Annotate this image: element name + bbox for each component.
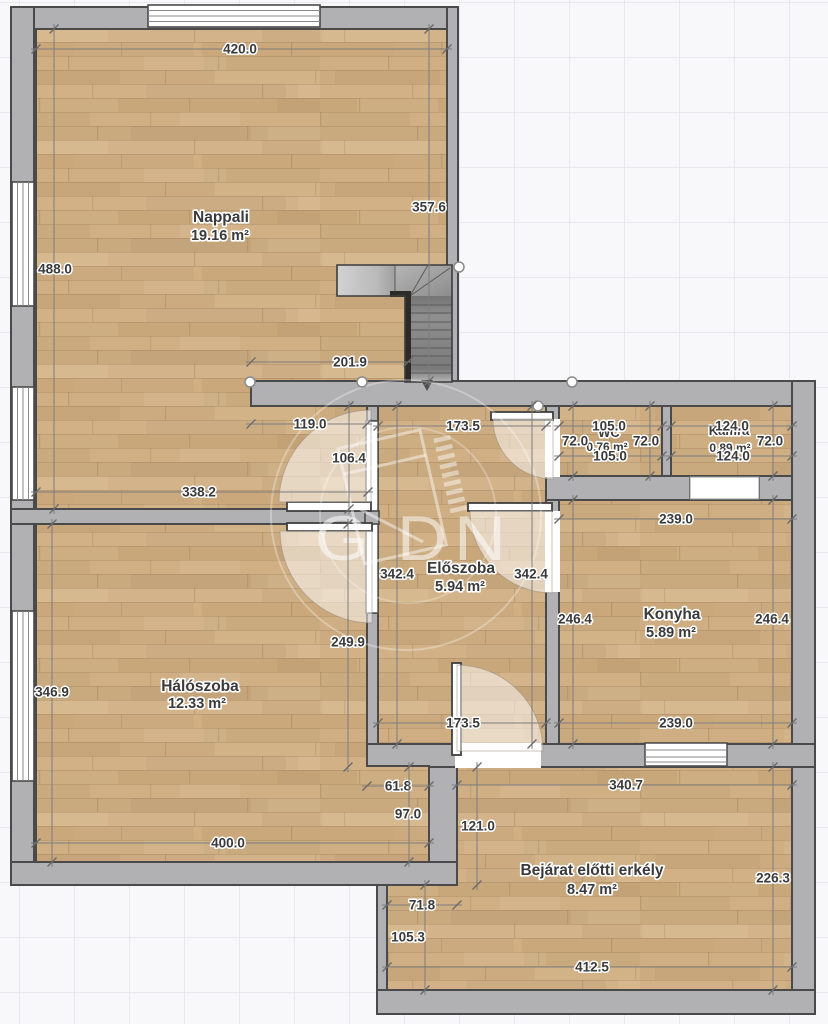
- svg-text:G: G: [315, 504, 369, 574]
- svg-text:226.3: 226.3: [756, 871, 790, 886]
- svg-text:72.0: 72.0: [562, 434, 588, 449]
- svg-text:246.4: 246.4: [755, 612, 789, 627]
- svg-text:121.0: 121.0: [461, 819, 495, 834]
- svg-text:173.5: 173.5: [446, 419, 480, 434]
- svg-text:246.4: 246.4: [558, 612, 592, 627]
- svg-text:61.8: 61.8: [385, 779, 412, 794]
- svg-text:72.0: 72.0: [633, 434, 659, 449]
- svg-text:5.89 m²: 5.89 m²: [646, 625, 696, 641]
- svg-text:124.0: 124.0: [715, 419, 749, 434]
- svg-text:357.6: 357.6: [412, 200, 446, 215]
- svg-text:346.9: 346.9: [35, 685, 69, 700]
- svg-text:119.0: 119.0: [293, 417, 326, 432]
- svg-text:400.0: 400.0: [211, 836, 245, 851]
- svg-text:8.47 m²: 8.47 m²: [567, 882, 617, 898]
- svg-text:72.0: 72.0: [757, 434, 783, 449]
- svg-text:342.4: 342.4: [514, 567, 548, 582]
- svg-text:420.0: 420.0: [223, 42, 257, 57]
- svg-text:488.0: 488.0: [38, 262, 72, 277]
- svg-text:106.4: 106.4: [332, 451, 366, 466]
- svg-text:239.0: 239.0: [659, 512, 693, 527]
- svg-text:105.3: 105.3: [391, 930, 425, 945]
- svg-text:97.0: 97.0: [395, 807, 421, 822]
- svg-text:Konyha: Konyha: [644, 606, 701, 623]
- svg-text:12.33 m²: 12.33 m²: [168, 696, 226, 712]
- svg-text:201.9: 201.9: [333, 355, 367, 370]
- svg-text:105.0: 105.0: [592, 419, 626, 434]
- svg-text:71.8: 71.8: [409, 898, 436, 913]
- svg-text:Bejárat előtti erkély: Bejárat előtti erkély: [520, 862, 663, 879]
- svg-text:338.2: 338.2: [182, 485, 216, 500]
- svg-text:239.0: 239.0: [659, 716, 693, 731]
- svg-text:105.0: 105.0: [593, 449, 627, 464]
- svg-text:124.0: 124.0: [716, 449, 750, 464]
- svg-text:342.4: 342.4: [380, 567, 414, 582]
- svg-text:Hálószoba: Hálószoba: [161, 678, 239, 695]
- svg-text:19.16 m²: 19.16 m²: [191, 228, 249, 244]
- svg-text:5.94 m²: 5.94 m²: [435, 579, 485, 595]
- svg-text:Nappali: Nappali: [193, 209, 249, 226]
- svg-text:173.5: 173.5: [446, 716, 480, 731]
- svg-text:412.5: 412.5: [575, 960, 609, 975]
- svg-text:340.7: 340.7: [609, 778, 643, 793]
- svg-text:249.9: 249.9: [331, 635, 365, 650]
- svg-text:Előszoba: Előszoba: [427, 560, 495, 577]
